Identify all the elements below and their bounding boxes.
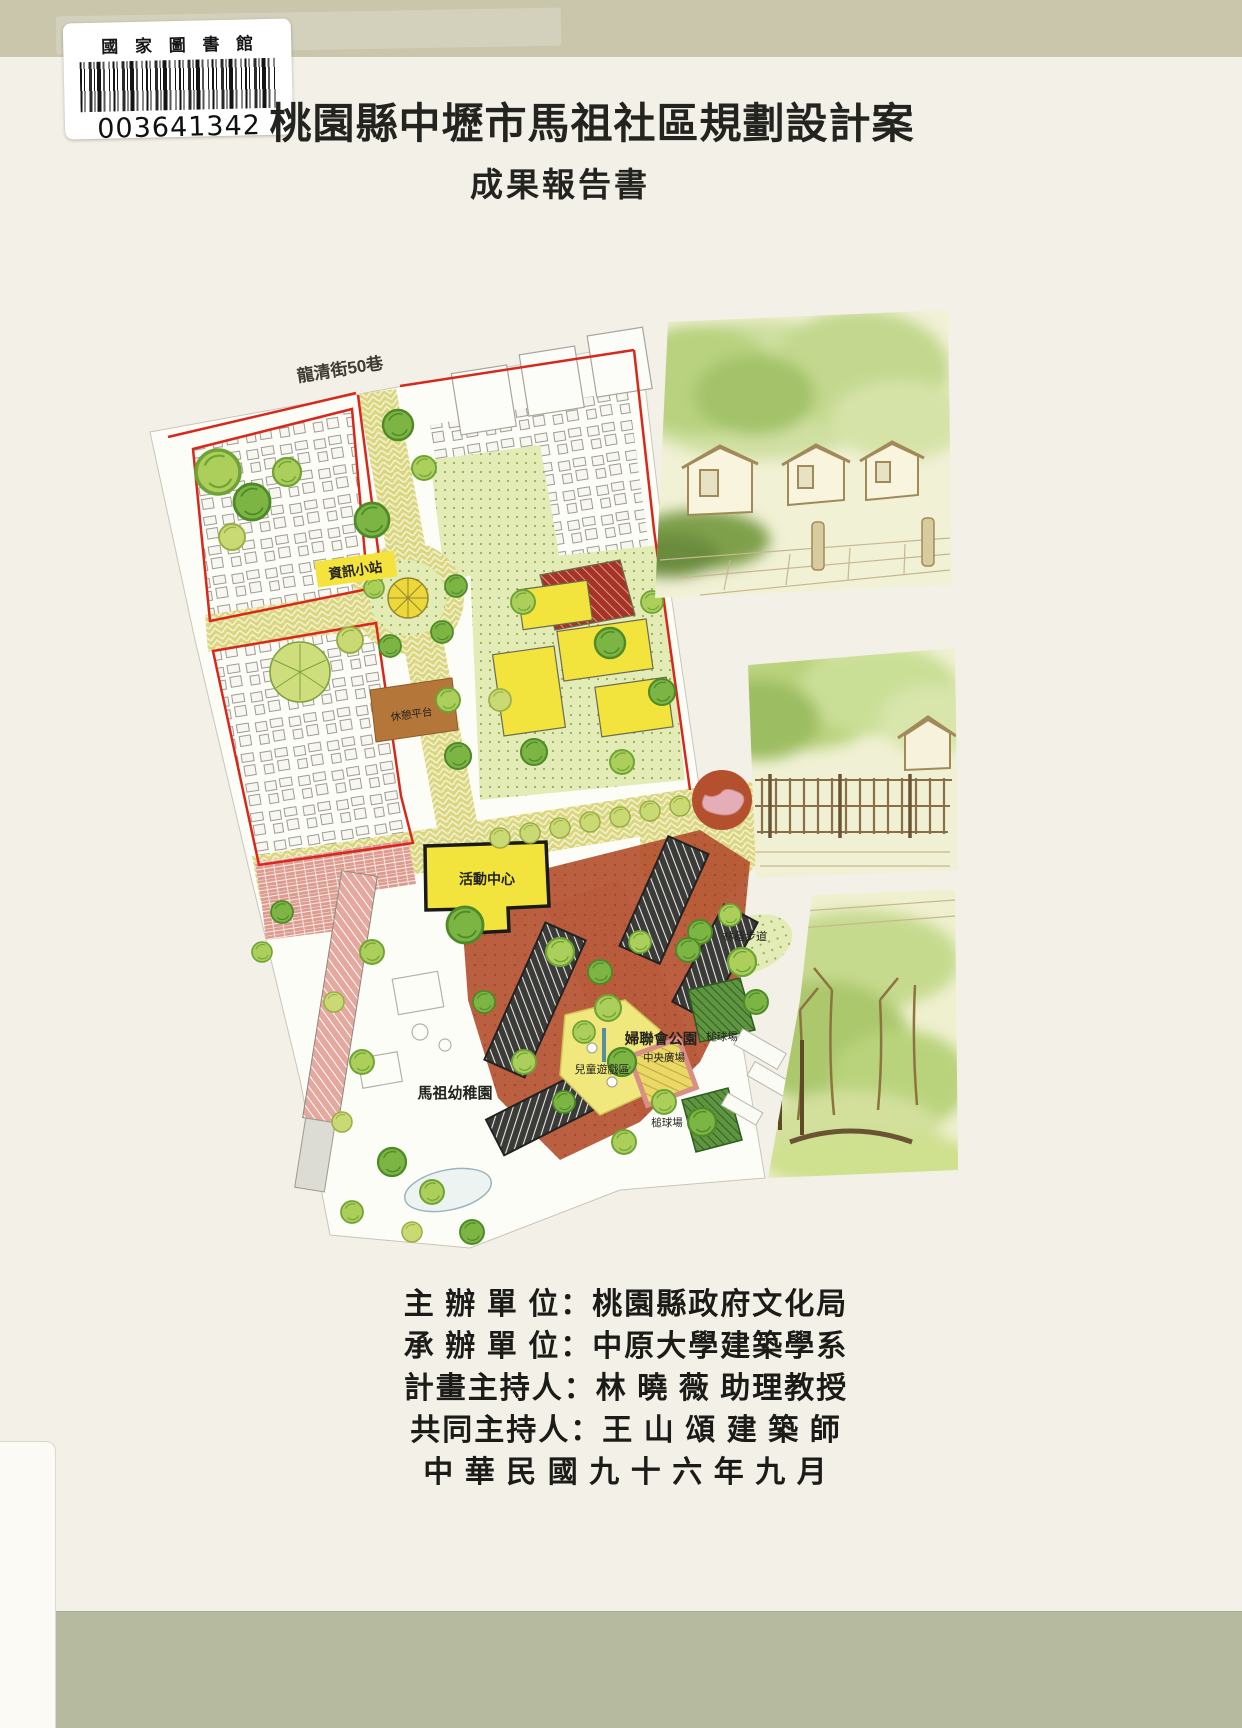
report-cover-page: 國 家 圖 書 館 003641342 桃園縣中壢市馬祖社區規劃設計案 成果報告… <box>0 0 1242 1728</box>
street-label-lane50: 龍清街50巷 <box>295 352 385 386</box>
label-kindergarten: 馬祖幼稚園 <box>417 1084 492 1102</box>
label-central-plaza: 中央廣場 <box>643 1051 685 1064</box>
sketch-village-houses <box>620 305 970 605</box>
label-croquet-lower: 槌球場 <box>651 1116 683 1129</box>
credit-date: 中 華 民 國 九 十 六 年 九 月 <box>404 1452 849 1494</box>
label-activity-center: 活動中心 <box>459 871 515 887</box>
credit-co-lead: 共同主持人：王 山 頌 建 築 師 <box>404 1410 849 1452</box>
credits-block: 主 辦 單 位：桃園縣政府文化局 承 辦 單 位：中原大學建築學系 計畫主持人：… <box>404 1284 849 1494</box>
credit-project-lead: 計畫主持人：林 曉 薇 助理教授 <box>404 1368 849 1410</box>
playground <box>692 770 752 830</box>
label-shaded-walk: 林蔭步道 <box>723 929 767 943</box>
gazebo <box>388 578 428 618</box>
credit-executor: 承 辦 單 位：中原大學建築學系 <box>404 1326 849 1368</box>
corner-sticker <box>0 1441 56 1728</box>
credit-organizer: 主 辦 單 位：桃園縣政府文化局 <box>404 1284 849 1326</box>
label-croquet-upper: 槌球場 <box>706 1030 738 1043</box>
label-children-play-zone: 兒童遊戲區 <box>575 1062 630 1076</box>
label-womens-league-park: 婦聯會公園 <box>624 1030 698 1048</box>
